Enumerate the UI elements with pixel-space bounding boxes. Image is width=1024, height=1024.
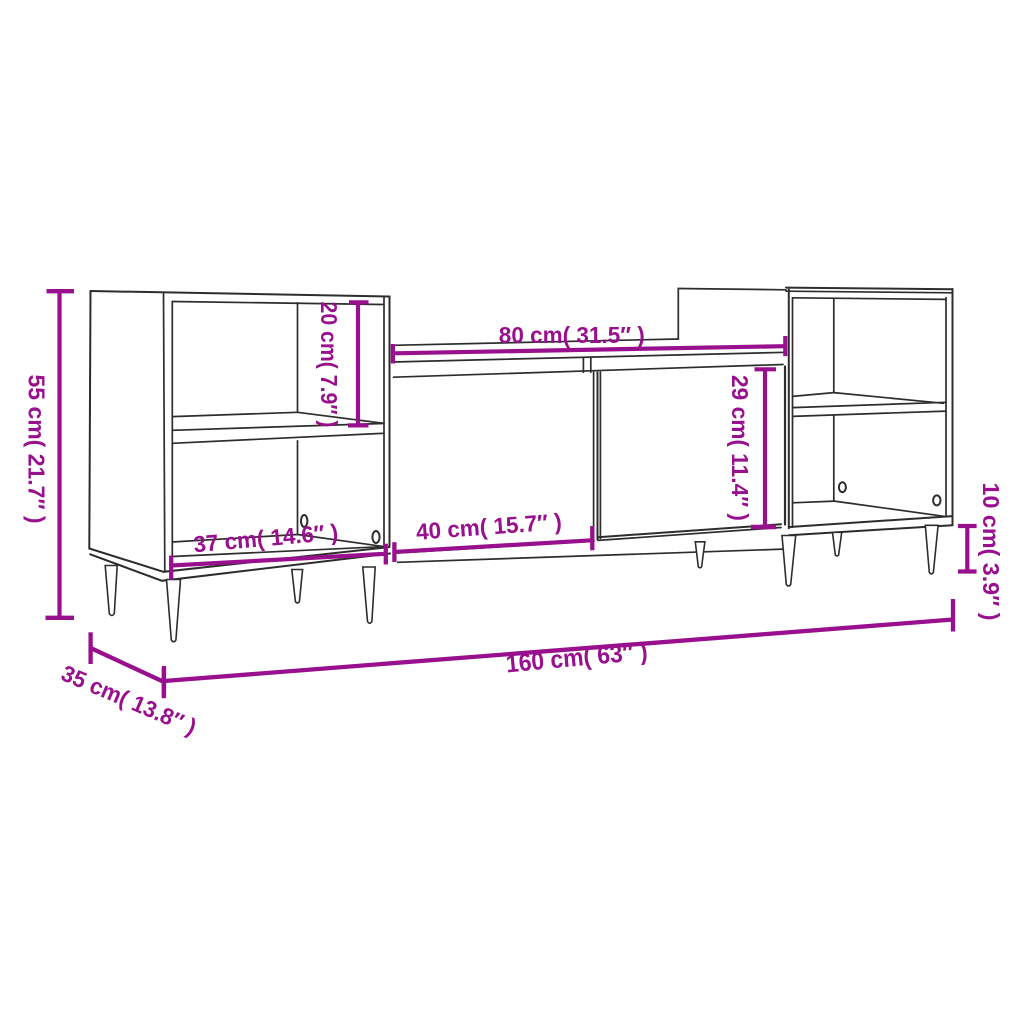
svg-text:20 cm( 7.9″ ): 20 cm( 7.9″ ) [316, 302, 342, 428]
svg-text:29 cm( 11.4″ ): 29 cm( 11.4″ ) [727, 375, 753, 521]
svg-text:10 cm( 3.9″ ): 10 cm( 3.9″ ) [978, 483, 1004, 621]
svg-text:55 cm( 21.7″ ): 55 cm( 21.7″ ) [24, 375, 50, 524]
svg-text:80 cm( 31.5″ ): 80 cm( 31.5″ ) [499, 322, 645, 348]
